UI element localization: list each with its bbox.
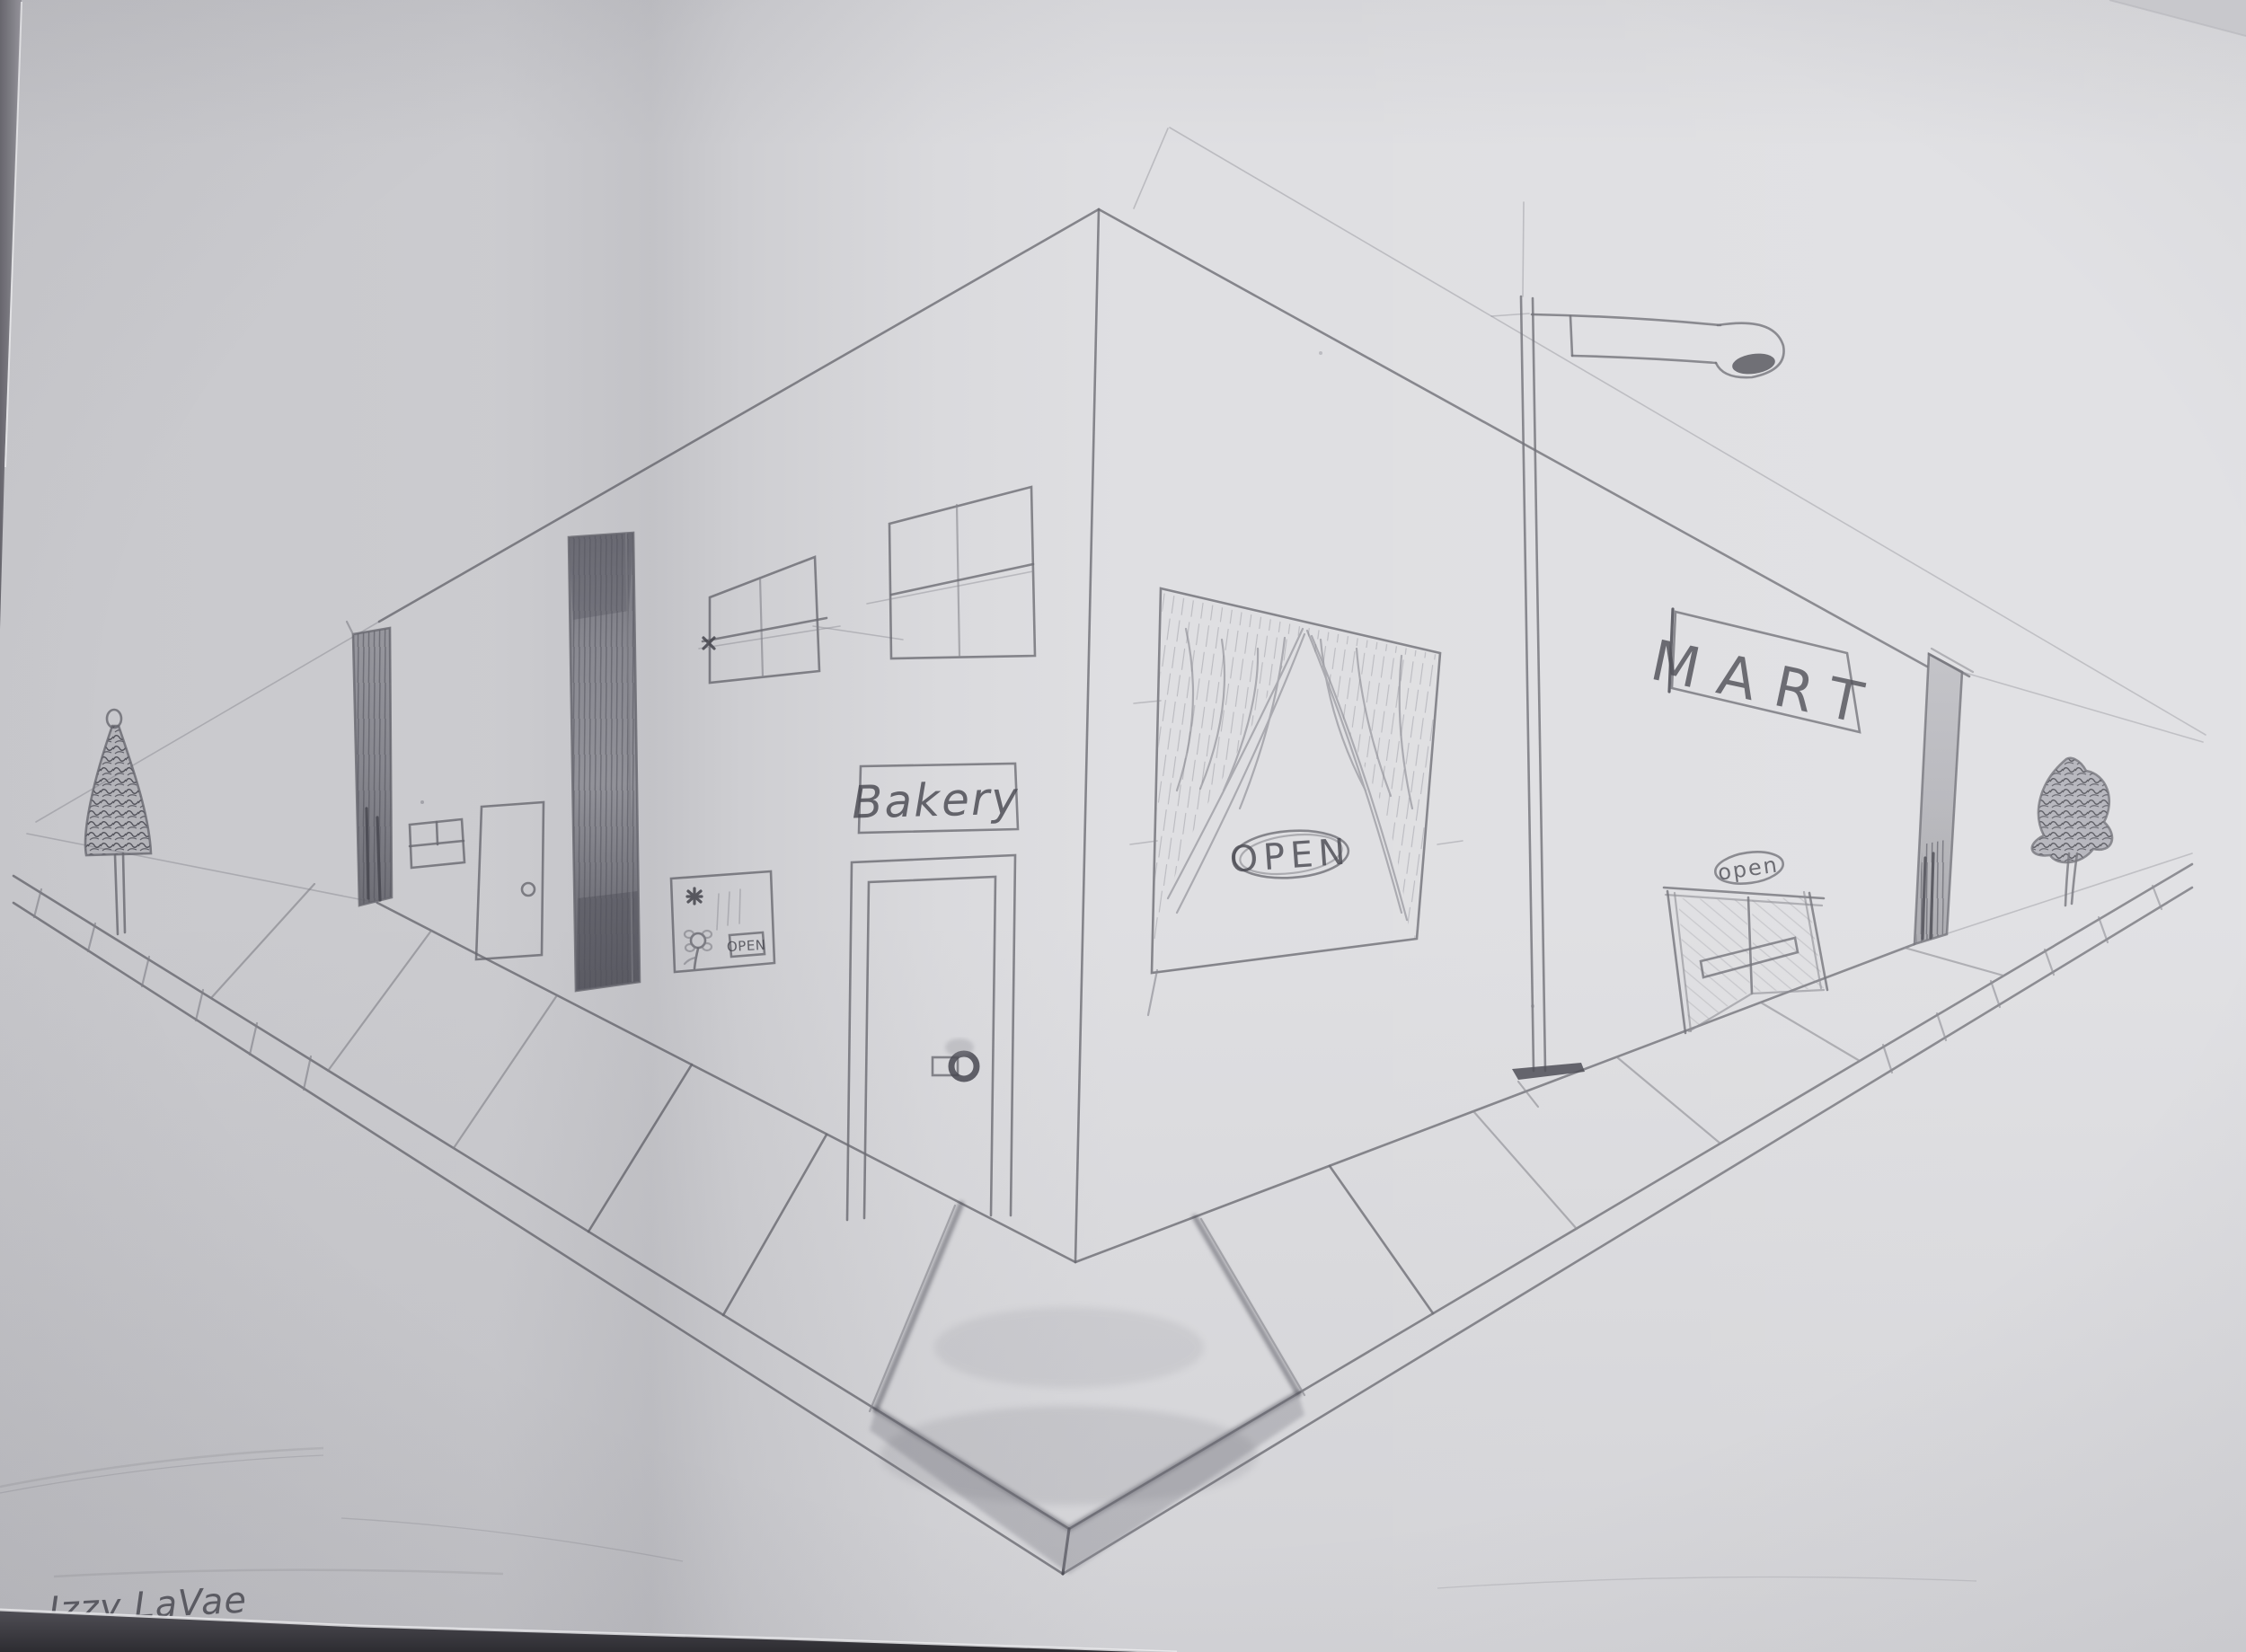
pencil-drawing: OPEN Bakery	[0, 0, 2246, 1652]
photo-of-pencil-drawing: OPEN Bakery	[0, 0, 2246, 1652]
lighting-overlays	[0, 0, 2246, 1652]
